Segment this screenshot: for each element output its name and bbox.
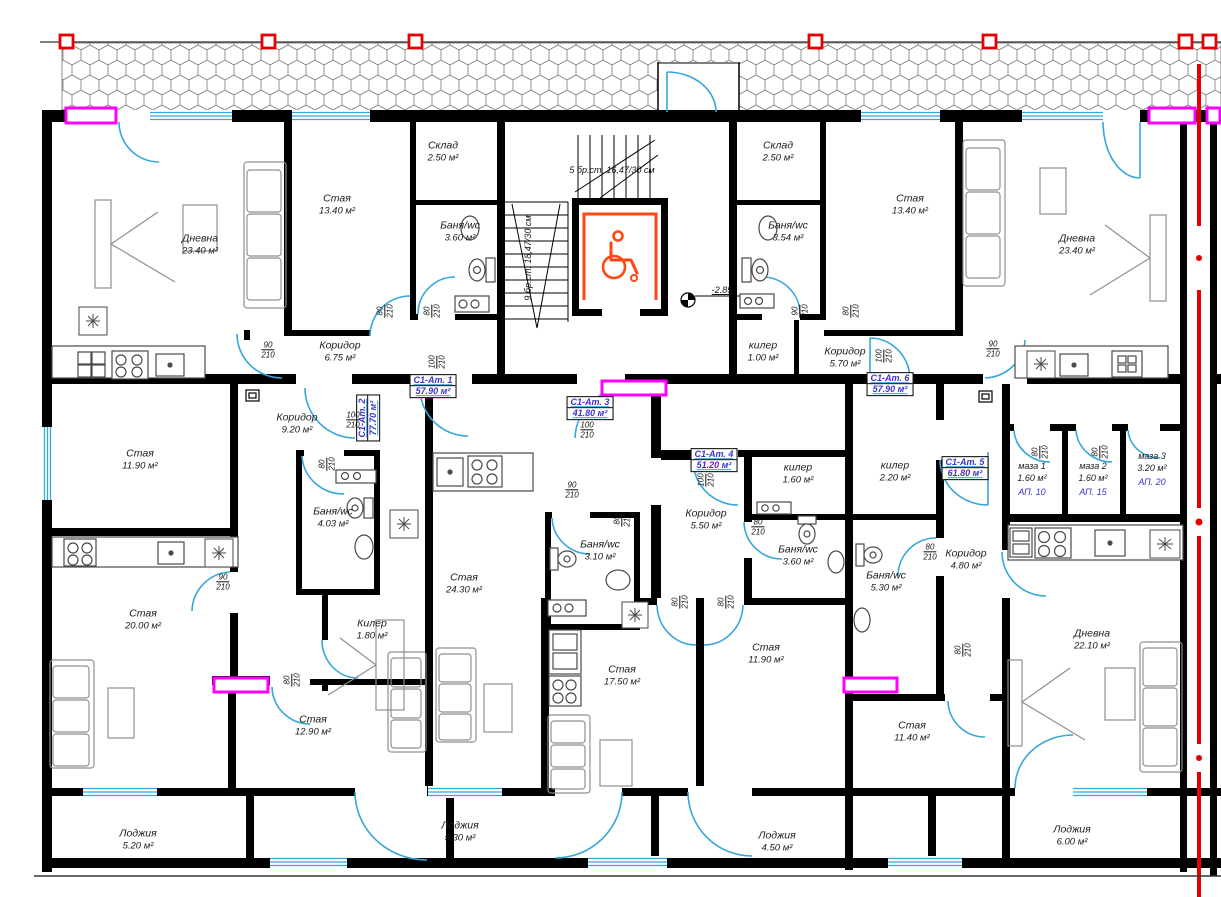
room-name: Лоджия: [1053, 824, 1091, 837]
room-name: Склад: [763, 140, 794, 153]
apartment-area: 77.70 м²: [369, 396, 379, 441]
door-height: 210: [884, 349, 894, 362]
door-size-label: 80210: [422, 304, 441, 317]
room-label: Стая11.40 м²: [894, 720, 929, 745]
room-name: Дневна: [1074, 628, 1110, 641]
room-area: 20.00 м²: [125, 621, 161, 633]
apartment-label: С1-Ат. 277.70 м²: [356, 395, 380, 442]
room-label: килер1.00 м²: [748, 340, 779, 365]
door-size-label: 100210: [696, 473, 715, 486]
room-name: Килер: [357, 618, 388, 631]
room-area: 5.30 м²: [866, 583, 906, 595]
door-height: 210: [565, 490, 578, 500]
room-area: 4.50 м²: [758, 843, 796, 855]
room-area: 11.90 м²: [122, 461, 157, 473]
room-name: Баня/wc: [580, 539, 620, 552]
room-area: 5.70 м²: [824, 359, 865, 371]
door-width: 80: [317, 457, 326, 470]
door-height: 210: [216, 582, 229, 592]
room-area: 24.30 м²: [446, 585, 482, 597]
door-size-label: 100210: [427, 355, 446, 368]
labels-layer: Дневна23.40 м²Стая13.40 м²Склад2.50 м²Ба…: [0, 0, 1221, 897]
room-area: 5.50 м²: [685, 521, 726, 533]
room-name: Склад: [428, 140, 459, 153]
room-area: 4.80 м²: [945, 561, 986, 573]
room-name: Дневна: [1059, 233, 1095, 246]
apartment-area: 51.20 м²: [692, 461, 737, 471]
door-size-label: 100210: [346, 410, 359, 429]
room-area: 11.40 м²: [894, 733, 929, 745]
door-width: 80: [1030, 445, 1039, 458]
apartment-label: С1-Ат. 561.80 м²: [942, 456, 989, 480]
apartment-label: С1-Ат. 657.90 м²: [867, 372, 914, 396]
door-height: 210: [1100, 445, 1110, 458]
room-name: Коридор: [945, 548, 986, 561]
room-label: Лоджия5.30 м²: [441, 820, 479, 845]
room-area: 3.10 м²: [580, 552, 620, 564]
room-label: Стая13.40 м²: [319, 193, 355, 218]
room-label: Дневна23.40 м²: [1059, 233, 1095, 258]
room-label: Склад2.50 м²: [428, 140, 459, 165]
door-height: 210: [800, 304, 810, 317]
floor-plan: Дневна23.40 м²Стая13.40 м²Склад2.50 м²Ба…: [0, 0, 1221, 897]
room-label: Коридор4.80 м²: [945, 548, 986, 573]
room-name: Коридор: [319, 340, 360, 353]
room-area: 3.60 м²: [440, 233, 480, 245]
door-height: 210: [292, 673, 302, 686]
cellar-apartment-ref: АП. 20: [1137, 477, 1166, 489]
cellar-apartment-ref: АП. 15: [1078, 487, 1107, 499]
door-width: 80: [953, 643, 962, 656]
room-name: Стая: [894, 720, 929, 733]
room-area: 11.90 м²: [748, 655, 783, 667]
door-width: 80: [923, 542, 936, 551]
room-name: Коридор: [824, 346, 865, 359]
door-size-label: 80210: [1030, 445, 1049, 458]
door-size-label: 100210: [580, 420, 593, 439]
room-name: Дневна: [182, 233, 218, 246]
cellar-name: маза 1: [1017, 461, 1046, 473]
door-height: 210: [346, 420, 359, 430]
room-area: 3.54 м²: [768, 233, 808, 245]
room-area: 1.00 м²: [748, 353, 779, 365]
door-height: 210: [680, 595, 690, 608]
room-area: 2.50 м²: [428, 153, 459, 165]
door-width: 90: [790, 304, 799, 317]
door-size-label: 80210: [282, 673, 301, 686]
apartment-label: С1-Ат. 451.20 м²: [691, 448, 738, 472]
room-name: килер: [880, 460, 911, 473]
room-area: 2.50 м²: [763, 153, 794, 165]
door-width: 100: [346, 410, 359, 419]
door-width: 80: [1090, 445, 1099, 458]
door-size-label: 90210: [790, 304, 809, 317]
room-label: Лоджия4.50 м²: [758, 830, 796, 855]
apartment-id: С1-Ат. 1: [411, 375, 456, 386]
room-name: Коридор: [685, 508, 726, 521]
door-size-label: 80210: [716, 595, 735, 608]
room-area: 13.40 м²: [319, 206, 355, 218]
door-size-label: 90210: [565, 480, 578, 499]
room-name: Стая: [319, 193, 355, 206]
room-label: Склад2.50 м²: [763, 140, 794, 165]
room-label: Баня/wc3.60 м²: [440, 220, 480, 245]
room-name: Стая: [295, 714, 331, 727]
annotation: -2.85: [712, 285, 733, 295]
room-name: Лоджия: [441, 820, 479, 833]
door-width: 80: [612, 513, 621, 526]
door-height: 210: [963, 643, 973, 656]
apartment-area: 57.90 м²: [868, 385, 913, 395]
door-width: 100: [696, 473, 705, 486]
room-name: Лоджия: [758, 830, 796, 843]
cellar-name: маза 2: [1078, 461, 1107, 473]
cellar-label: маза 11.60 м²АП. 10: [1017, 461, 1046, 499]
door-height: 210: [923, 552, 936, 562]
door-width: 100: [580, 420, 593, 429]
room-name: килер: [748, 340, 779, 353]
annotation: 9 бр.ст. 18,47/30 см: [523, 215, 533, 300]
room-label: Лоджия6.00 м²: [1053, 824, 1091, 849]
door-height: 210: [751, 527, 764, 537]
door-width: 80: [375, 304, 384, 317]
room-label: Баня/wc3.54 м²: [768, 220, 808, 245]
cellar-name: маза 3: [1137, 451, 1166, 463]
room-label: Стая13.40 м²: [892, 193, 928, 218]
room-label: Коридор9.20 м²: [276, 412, 317, 437]
room-name: Стая: [748, 642, 783, 655]
room-area: 12.90 м²: [295, 727, 331, 739]
room-label: Баня/wc5.30 м²: [866, 570, 906, 595]
door-height: 210: [327, 457, 337, 470]
room-name: Стая: [604, 664, 640, 677]
room-label: Баня/wc4.03 м²: [313, 506, 353, 531]
door-height: 210: [385, 304, 395, 317]
room-area: 2.20 м²: [880, 473, 911, 485]
room-name: Баня/wc: [313, 506, 353, 519]
room-area: 9.20 м²: [276, 425, 317, 437]
room-area: 23.40 м²: [1059, 246, 1095, 258]
room-label: Баня/wc3.60 м²: [778, 544, 818, 569]
apartment-id: С1-Ат. 6: [868, 373, 913, 384]
room-name: Баня/wc: [440, 220, 480, 233]
door-width: 90: [261, 340, 274, 349]
room-label: Стая24.30 м²: [446, 572, 482, 597]
door-size-label: 80210: [317, 457, 336, 470]
door-width: 90: [216, 572, 229, 581]
room-name: Стая: [125, 608, 161, 621]
room-label: килер2.20 м²: [880, 460, 911, 485]
room-label: Коридор5.50 м²: [685, 508, 726, 533]
room-name: Баня/wc: [866, 570, 906, 583]
apartment-id: С1-Ат. 3: [568, 397, 613, 408]
apartment-id: С1-Ат. 4: [692, 449, 737, 460]
room-area: 5.20 м²: [119, 841, 157, 853]
room-area: 3.60 м²: [778, 557, 818, 569]
door-size-label: 80210: [1090, 445, 1109, 458]
door-height: 210: [261, 350, 274, 360]
door-height: 210: [986, 349, 999, 359]
door-width: 80: [282, 673, 291, 686]
door-width: 80: [716, 595, 725, 608]
room-area: 17.50 м²: [604, 677, 640, 689]
door-width: 80: [751, 517, 764, 526]
door-width: 80: [422, 304, 431, 317]
door-height: 210: [706, 473, 716, 486]
door-width: 90: [565, 480, 578, 489]
door-size-label: 80210: [670, 595, 689, 608]
room-name: Стая: [892, 193, 928, 206]
room-label: Стая12.90 м²: [295, 714, 331, 739]
room-label: Баня/wc3.10 м²: [580, 539, 620, 564]
room-area: 4.03 м²: [313, 519, 353, 531]
room-label: Дневна22.10 м²: [1074, 628, 1110, 653]
door-height: 210: [580, 430, 593, 440]
room-label: Стая11.90 м²: [122, 448, 157, 473]
room-area: 23.40 м²: [182, 246, 218, 258]
room-area: 1.60 м²: [783, 475, 814, 487]
room-name: Коридор: [276, 412, 317, 425]
door-height: 210: [851, 304, 861, 317]
room-area: 6.00 м²: [1053, 837, 1091, 849]
room-area: 5.30 м²: [441, 833, 479, 845]
door-size-label: 90210: [986, 339, 999, 358]
door-size-label: 80210: [612, 513, 631, 526]
cellar-area: 1.60 м²: [1078, 473, 1107, 485]
door-size-label: 80210: [953, 643, 972, 656]
room-label: Коридор5.70 м²: [824, 346, 865, 371]
room-label: Килер1.80 м²: [357, 618, 388, 643]
room-label: Лоджия5.20 м²: [119, 828, 157, 853]
door-size-label: 100210: [874, 349, 893, 362]
room-label: Стая17.50 м²: [604, 664, 640, 689]
cellar-label: маза 33.20 м²АП. 20: [1137, 451, 1166, 489]
room-name: Лоджия: [119, 828, 157, 841]
door-width: 100: [427, 355, 436, 368]
room-label: Стая11.90 м²: [748, 642, 783, 667]
door-height: 210: [1040, 445, 1050, 458]
door-size-label: 80210: [923, 542, 936, 561]
apartment-area: 57.90 м²: [411, 387, 456, 397]
door-size-label: 80210: [751, 517, 764, 536]
door-size-label: 80210: [841, 304, 860, 317]
room-label: Коридор6.75 м²: [319, 340, 360, 365]
door-width: 80: [841, 304, 850, 317]
room-area: 6.75 м²: [319, 353, 360, 365]
room-label: Стая20.00 м²: [125, 608, 161, 633]
door-size-label: 80210: [375, 304, 394, 317]
room-area: 22.10 м²: [1074, 641, 1110, 653]
room-area: 13.40 м²: [892, 206, 928, 218]
door-width: 90: [986, 339, 999, 348]
door-height: 210: [622, 513, 632, 526]
door-width: 100: [874, 349, 883, 362]
room-name: Стая: [446, 572, 482, 585]
room-name: килер: [783, 462, 814, 475]
apartment-area: 41.80 м²: [568, 409, 613, 419]
annotation: 5 бр.ст. 16,47/30 см: [569, 165, 654, 175]
apartment-area: 61.80 м²: [943, 469, 988, 479]
door-height: 210: [432, 304, 442, 317]
door-height: 210: [437, 355, 447, 368]
cellar-area: 1.60 м²: [1017, 473, 1046, 485]
room-label: килер1.60 м²: [783, 462, 814, 487]
apartment-label: С1-Ат. 157.90 м²: [410, 374, 457, 398]
apartment-id: С1-Ат. 5: [943, 457, 988, 468]
room-name: Баня/wc: [768, 220, 808, 233]
door-size-label: 90210: [216, 572, 229, 591]
room-name: Стая: [122, 448, 157, 461]
door-height: 210: [726, 595, 736, 608]
cellar-apartment-ref: АП. 10: [1017, 487, 1046, 499]
door-size-label: 90210: [261, 340, 274, 359]
door-width: 80: [670, 595, 679, 608]
room-label: Дневна23.40 м²: [182, 233, 218, 258]
cellar-label: маза 21.60 м²АП. 15: [1078, 461, 1107, 499]
room-area: 1.80 м²: [357, 631, 388, 643]
apartment-label: С1-Ат. 341.80 м²: [567, 396, 614, 420]
cellar-area: 3.20 м²: [1137, 463, 1166, 475]
room-name: Баня/wc: [778, 544, 818, 557]
